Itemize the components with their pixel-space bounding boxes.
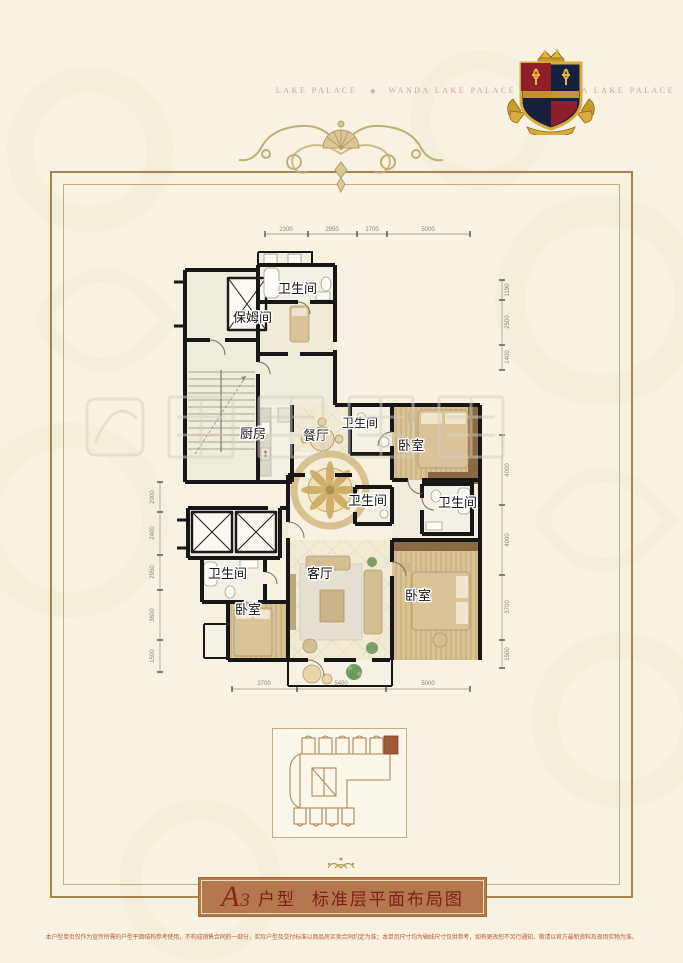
svg-text:5000: 5000 [421,227,435,233]
ribbon-segment: WANDA LAKE PALACE [389,86,517,95]
svg-text:2400: 2400 [150,526,156,540]
svg-text:5400: 5400 [334,681,348,687]
svg-text:3700: 3700 [257,681,271,687]
title-banner-inner: A 3 户型 标准层平面布局图 [201,880,484,914]
label-bedroom-top: 卧室 [398,438,424,453]
nanny-bed [290,306,309,342]
site-plan [272,728,407,838]
svg-text:1700: 1700 [365,227,379,233]
crest-emblem-icon [505,47,597,135]
svg-text:3600: 3600 [150,608,156,622]
unit-word: 户型 [258,885,296,910]
ribbon-segment: LAKE PALACE [276,86,357,95]
floor-plan: 2300 2950 1700 5000 3700 5400 5000 [140,222,520,702]
label-kitchen: 厨房 [240,426,266,441]
label-bathroom-top: 卫生间 [278,281,317,296]
svg-text:2500: 2500 [505,315,511,329]
porch-detail [288,254,301,264]
dimension-left: 2000 2400 2950 3600 1500 [150,482,163,672]
label-bathroom-left: 卫生间 [208,566,247,581]
disclaimer-text: 本户型单页仅作为宣传所需的户型平面结构参考使用，不构成销售合同的一部分，实际户型… [40,932,643,941]
svg-text:1500: 1500 [505,647,511,661]
label-nanny-room: 保姆间 [233,310,272,325]
svg-text:2950: 2950 [325,227,339,233]
svg-text:2000: 2000 [150,490,156,504]
brochure-page: LAKE PALACE ◆ WANDA LAKE PALACE ◆ WANDA … [0,0,683,963]
highlighted-unit [384,736,398,754]
label-living-room: 客厅 [307,566,333,581]
svg-text:4000: 4000 [505,533,511,547]
plan-title: 标准层平面布局图 [312,885,464,910]
flourish-shell [323,121,359,148]
divider-ornament-icon [325,856,357,871]
crest-shield [521,63,581,129]
brand-ribbon-text: LAKE PALACE ◆ WANDA LAKE PALACE ◆ WANDA … [276,82,675,99]
svg-text:1190: 1190 [505,283,511,297]
unit-letter: A [221,882,239,912]
svg-text:4000: 4000 [505,463,511,477]
porch-detail [264,254,277,264]
svg-text:5000: 5000 [421,681,435,687]
label-bathroom-mid: 卫生间 [342,416,378,430]
unit-number: 3 [240,890,250,912]
label-bedroom-right: 卧室 [405,588,431,603]
label-bathroom-center: 卫生间 [348,493,387,508]
diamond-separator-icon: ◆ [370,87,375,95]
label-bathroom-right: 卫生间 [438,495,477,510]
crest-crown [538,49,564,63]
ornamental-flourish [236,112,446,194]
dimension-top: 2300 2950 1700 5000 [265,227,470,237]
svg-text:1500: 1500 [150,649,156,663]
label-dining-room: 餐厅 [303,428,329,443]
svg-text:2300: 2300 [279,227,293,233]
svg-text:1400: 1400 [505,350,511,364]
flourish-pendant [335,162,347,192]
svg-text:3700: 3700 [505,600,511,614]
title-banner: A 3 户型 标准层平面布局图 [198,877,487,917]
dimension-right: 1190 2500 1400 4000 4000 3700 1500 [499,280,511,668]
label-bedroom-left: 卧室 [235,602,261,617]
svg-text:2950: 2950 [150,565,156,579]
